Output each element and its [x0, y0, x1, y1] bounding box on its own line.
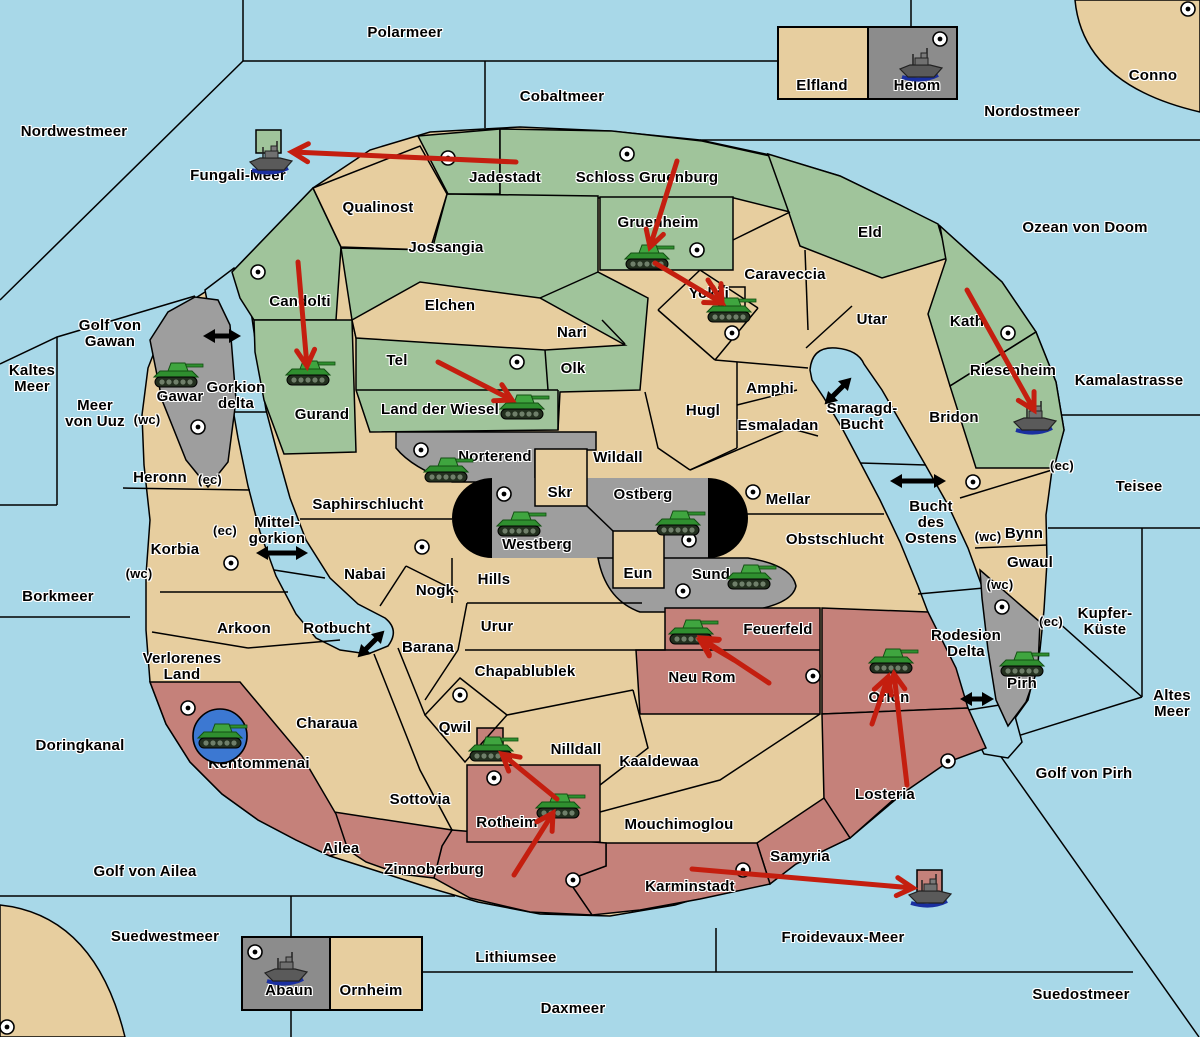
territory-label-nari: Nari: [557, 325, 587, 341]
territory-label-sottovia: Sottovia: [390, 792, 451, 808]
territory-label-riesenheim: Riesenheim: [970, 363, 1056, 379]
label-layer: PolarmeerCobaltmeerNordwestmeerFungali-M…: [0, 0, 1200, 1037]
coast-marker--ec-: (ec): [213, 523, 237, 539]
territory-label-wildall: Wildall: [593, 450, 643, 466]
territory-label-norterend: Norterend: [458, 449, 531, 465]
territory-label-olk: Olk: [561, 361, 586, 377]
territory-label-qwil: Qwil: [439, 720, 471, 736]
territory-label-feuerfeld: Feuerfeld: [743, 622, 812, 638]
sea-label-borkmeer: Borkmeer: [22, 589, 94, 605]
territory-label-utar: Utar: [857, 312, 888, 328]
sea-label-kamalastrasse: Kamalastrasse: [1075, 373, 1184, 389]
sea-label-ozean-von-doom: Ozean von Doom: [1022, 220, 1147, 236]
sea-label-golf-von-pirh: Golf von Pirh: [1036, 766, 1133, 782]
coast-marker--ec-: (ec): [1050, 458, 1074, 474]
sea-label-rodesion-delta: Rodesion Delta: [931, 628, 1001, 660]
territory-label-abaun: Abaun: [265, 983, 313, 999]
territory-label-gurand: Gurand: [295, 407, 350, 423]
territory-label-charaua: Charaua: [296, 716, 357, 732]
territory-label-karminstadt: Karminstadt: [645, 879, 735, 895]
sea-label-meer-von-uuz: Meer von Uuz: [65, 398, 125, 430]
territory-label-kaaldewaa: Kaaldewaa: [619, 754, 698, 770]
sea-label-smaragd-bucht: Smaragd- Bucht: [827, 401, 898, 433]
territory-label-amphi: Amphi: [746, 381, 794, 397]
territory-label-saphirschlucht: Saphirschlucht: [312, 497, 423, 513]
territory-label-barana: Barana: [402, 640, 454, 656]
territory-label-jadestadt: Jadestadt: [469, 170, 541, 186]
sea-label-kaltes-meer: Kaltes Meer: [9, 363, 55, 395]
territory-label-nilldall: Nilldall: [551, 742, 602, 758]
territory-label-schloss-gruenburg: Schloss Gruenburg: [576, 170, 719, 186]
territory-label-helom: Helom: [894, 78, 941, 94]
territory-label-rotheim: Rotheim: [476, 815, 537, 831]
territory-label-urur: Urur: [481, 619, 513, 635]
sea-label-altes-meer: Altes Meer: [1153, 688, 1191, 720]
territory-label-esmaladan: Esmaladan: [737, 418, 818, 434]
sea-label-teisee: Teisee: [1116, 479, 1163, 495]
territory-label-yokai: Yokai: [689, 286, 729, 302]
territory-label-jossangia: Jossangia: [408, 240, 483, 256]
sea-label-polarmeer: Polarmeer: [367, 25, 442, 41]
territory-label-gruenheim: Gruenheim: [618, 215, 699, 231]
territory-label-losteria: Losteria: [855, 787, 915, 803]
territory-label-ailea: Ailea: [323, 841, 360, 857]
territory-label-gawar: Gawar: [157, 389, 204, 405]
sea-label-golf-von-ailea: Golf von Ailea: [93, 864, 196, 880]
sea-label-lithiumsee: Lithiumsee: [475, 950, 556, 966]
sea-label-daxmeer: Daxmeer: [541, 1001, 606, 1017]
territory-label-mellar: Mellar: [766, 492, 811, 508]
coast-marker--wc-: (wc): [126, 566, 153, 582]
sea-label-nordostmeer: Nordostmeer: [984, 104, 1080, 120]
territory-label-eld: Eld: [858, 225, 882, 241]
territory-label-ornheim: Ornheim: [339, 983, 402, 999]
coast-marker--wc-: (wc): [987, 577, 1014, 593]
territory-label-elfland: Elfland: [796, 78, 847, 94]
territory-label-ostberg: Ostberg: [614, 487, 673, 503]
territory-label-arkoon: Arkoon: [217, 621, 271, 637]
strategy-map[interactable]: PolarmeerCobaltmeerNordwestmeerFungali-M…: [0, 0, 1200, 1037]
territory-label-caraveccia: Caraveccia: [744, 267, 825, 283]
territory-label-hills: Hills: [478, 572, 511, 588]
sea-label-suedostmeer: Suedostmeer: [1032, 987, 1129, 1003]
territory-label-heronn: Heronn: [133, 470, 187, 486]
territory-label-pirh: Pirh: [1007, 676, 1037, 692]
sea-label-nordwestmeer: Nordwestmeer: [21, 124, 128, 140]
sea-label-rotbucht: Rotbucht: [303, 621, 370, 637]
coast-marker--ec-: (ec): [198, 472, 222, 488]
sea-label-golf-von-gawan: Golf von Gawan: [79, 318, 141, 350]
coast-marker--wc-: (wc): [134, 412, 161, 428]
coast-marker--wc-: (wc): [975, 529, 1002, 545]
territory-label-sund: Sund: [692, 567, 730, 583]
territory-label-skr: Skr: [548, 485, 573, 501]
territory-label-hugl: Hugl: [686, 403, 720, 419]
territory-label-korbia: Korbia: [151, 542, 200, 558]
sea-label-bucht-des-ostens: Bucht des Ostens: [905, 499, 957, 547]
territory-label-mouchimoglou: Mouchimoglou: [624, 817, 733, 833]
territory-label-tel: Tel: [386, 353, 407, 369]
territory-label-chapablublek: Chapablublek: [475, 664, 576, 680]
territory-label-samyria: Samyria: [770, 849, 830, 865]
sea-label-suedwestmeer: Suedwestmeer: [111, 929, 219, 945]
territory-label-elchen: Elchen: [425, 298, 475, 314]
sea-label-cobaltmeer: Cobaltmeer: [520, 89, 605, 105]
territory-label-nogk: Nogk: [416, 583, 454, 599]
sea-label-fungali-meer: Fungali-Meer: [190, 168, 286, 184]
coast-marker--ec-: (ec): [1039, 614, 1063, 630]
sea-label-doringkanal: Doringkanal: [36, 738, 125, 754]
territory-label-kath: Kath: [950, 314, 984, 330]
territory-label-gwaul: Gwaul: [1007, 555, 1053, 571]
territory-label-bridon: Bridon: [929, 410, 979, 426]
territory-label-eun: Eun: [624, 566, 653, 582]
territory-label-westberg: Westberg: [502, 537, 572, 553]
sea-label-mittel-gorkion: Mittel- gorkion: [249, 515, 305, 547]
territory-label-verlorenes-land: Verlorenes Land: [143, 651, 222, 683]
territory-label-obstschlucht: Obstschlucht: [786, 532, 884, 548]
territory-label-neu-rom: Neu Rom: [668, 670, 735, 686]
sea-label-kupfer-k-ste: Kupfer- Küste: [1078, 606, 1133, 638]
territory-label-zinnoberburg: Zinnoberburg: [384, 862, 484, 878]
territory-label-orlon: Orlon: [869, 690, 910, 706]
territory-label-land-der-wiesel: Land der Wiesel: [381, 402, 499, 418]
territory-label-candolti: Candolti: [269, 294, 331, 310]
territory-label-conno: Conno: [1129, 68, 1177, 84]
sea-label-gorkion-delta: Gorkion delta: [207, 380, 266, 412]
territory-label-bynn: Bynn: [1005, 526, 1043, 542]
sea-label-froidevaux-meer: Froidevaux-Meer: [781, 930, 904, 946]
territory-label-qualinost: Qualinost: [343, 200, 414, 216]
territory-label-nabai: Nabai: [344, 567, 386, 583]
territory-label-kentommenai: Kentommenai: [208, 756, 309, 772]
